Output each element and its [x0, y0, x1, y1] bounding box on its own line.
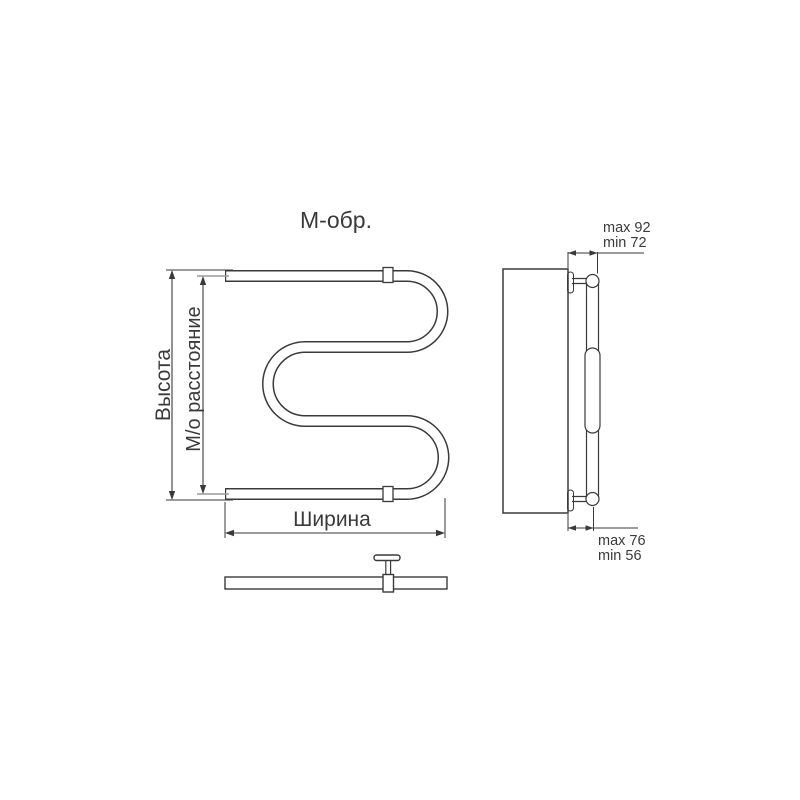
arrow-right-icon	[586, 525, 594, 531]
towel-rail-diagram: М-обр. Высота М/о расстояние	[0, 0, 800, 800]
arrow-left-icon	[568, 250, 576, 256]
bottom-offset-min-label: min 56	[598, 548, 642, 564]
air-valve	[374, 555, 400, 576]
arrow-down-icon	[169, 491, 175, 500]
pipe-union-bottom	[383, 487, 393, 502]
arrow-right-icon	[436, 530, 445, 536]
wall	[503, 269, 568, 513]
bottom-view-pipe-bar	[225, 577, 447, 589]
bracket-ball-bottom	[586, 493, 599, 506]
arrow-up-icon	[200, 276, 206, 285]
pipe-union-top	[383, 268, 393, 283]
bottom-view	[225, 555, 447, 592]
side-view: max 92 min 72 max 76 min 56	[503, 220, 651, 564]
serpentine-pipe-outline	[225, 276, 444, 494]
bottom-offset-max-label: max 76	[598, 533, 646, 549]
width-dimension: Ширина	[225, 498, 445, 538]
center-distance-dimension: М/о расстояние	[183, 276, 229, 494]
bottom-view-union	[383, 575, 394, 593]
arrow-left-icon	[568, 525, 576, 531]
arrow-left-icon	[225, 530, 234, 536]
width-label: Ширина	[293, 508, 371, 531]
wall-offset-dimension-bottom: max 76 min 56	[568, 507, 646, 564]
wall-offset-dimension-top: max 92 min 72	[568, 220, 651, 274]
bracket-ball-top	[586, 275, 599, 288]
height-label: Высота	[152, 349, 175, 421]
center-distance-label: М/о расстояние	[183, 306, 205, 451]
top-offset-max-label: max 92	[603, 220, 651, 236]
top-offset-min-label: min 72	[603, 235, 647, 251]
arrow-up-icon	[169, 270, 175, 279]
front-view: Высота М/о расстояние Ширина	[152, 268, 445, 539]
valve-cap	[374, 555, 400, 561]
arrow-down-icon	[200, 485, 206, 494]
arrow-right-icon	[590, 250, 598, 256]
side-pipe-bend-capsule	[585, 348, 600, 433]
serpentine-pipe-body	[225, 276, 444, 494]
diagram-stage: М-обр. Высота М/о расстояние	[0, 0, 800, 800]
diagram-title: М-обр.	[300, 207, 372, 233]
